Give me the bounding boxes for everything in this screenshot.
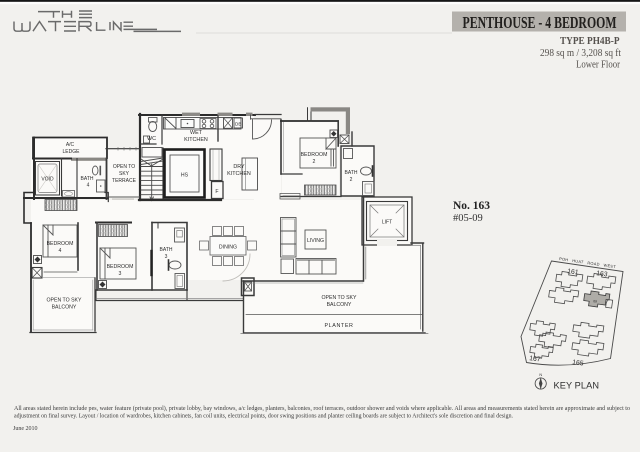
svg-text:No. 163: No. 163 [453,200,490,212]
svg-text:BATH: BATH [345,170,358,176]
svg-text:BALCONY: BALCONY [327,302,352,308]
svg-text:BATH: BATH [81,176,94,182]
svg-text:N: N [539,373,542,377]
svg-text:F: F [215,189,218,195]
svg-text:SKY: SKY [119,171,130,177]
svg-text:A/C: A/C [66,142,75,148]
svg-text:#05-09: #05-09 [453,213,483,224]
svg-text:165: 165 [572,359,584,368]
svg-text:June 2010: June 2010 [13,425,38,432]
svg-text:BATH: BATH [160,247,173,253]
svg-text:298 sq m / 3,208 sq ft: 298 sq m / 3,208 sq ft [540,48,621,59]
svg-text:OPEN TO: OPEN TO [113,164,135,170]
svg-text:WET: WET [190,130,203,136]
svg-text:OPEN TO SKY: OPEN TO SKY [47,298,83,304]
svg-text:BALCONY: BALCONY [52,305,77,311]
svg-text:2: 2 [350,177,353,183]
svg-text:PENTHOUSE - 4 BEDROOM: PENTHOUSE - 4 BEDROOM [463,13,617,32]
svg-text:167: 167 [529,355,541,364]
svg-text:BEDROOM: BEDROOM [47,241,74,247]
svg-text:KITCHEN: KITCHEN [184,137,208,143]
svg-text:OPEN TO SKY: OPEN TO SKY [322,295,358,301]
svg-text:PLANTER: PLANTER [324,323,353,329]
svg-text:DB: DB [235,122,241,127]
svg-text:09: 09 [593,299,597,304]
svg-text:4: 4 [87,183,90,189]
svg-text:LIFT: LIFT [382,220,392,226]
svg-text:BEDROOM: BEDROOM [301,152,328,158]
svg-text:LIVING: LIVING [307,238,324,244]
svg-text:DINING: DINING [219,245,237,251]
svg-text:HS: HS [181,173,189,179]
svg-text:3: 3 [165,254,168,260]
svg-text:KEY PLAN: KEY PLAN [554,380,600,390]
svg-text:VOID: VOID [41,177,54,183]
svg-text:2: 2 [313,159,316,165]
svg-text:BEDROOM: BEDROOM [107,264,134,270]
svg-text:WC: WC [147,136,156,142]
svg-text:All areas stated herein includ: All areas stated herein include pes, wat… [14,405,630,412]
svg-text:DRY: DRY [233,164,245,170]
svg-text:TERRACE: TERRACE [112,178,137,184]
svg-text:Lower Floor: Lower Floor [576,59,621,70]
svg-text:adjustment on final survey. La: adjustment on final survey. Layout / loc… [14,413,514,420]
svg-text:163: 163 [596,270,608,279]
svg-text:4: 4 [59,248,62,254]
svg-text:KITCHEN: KITCHEN [227,171,251,177]
svg-text:3: 3 [119,271,122,277]
svg-text:TYPE PH4B-P: TYPE PH4B-P [560,35,620,47]
svg-text:LEDGE: LEDGE [63,149,81,155]
svg-text:161: 161 [567,268,579,277]
